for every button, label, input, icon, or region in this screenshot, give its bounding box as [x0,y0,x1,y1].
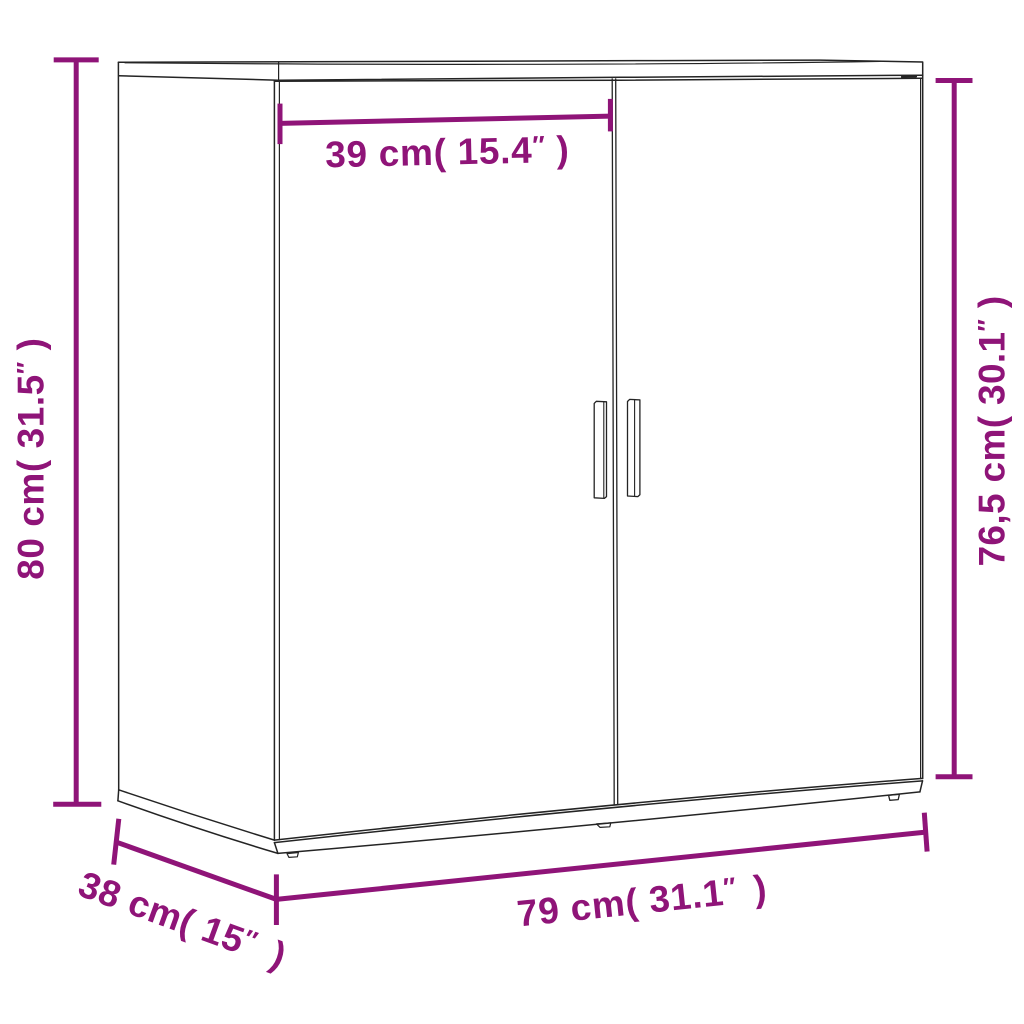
svg-text:76,5 cm( 30.1″ ): 76,5 cm( 30.1″ ) [971,295,1012,566]
